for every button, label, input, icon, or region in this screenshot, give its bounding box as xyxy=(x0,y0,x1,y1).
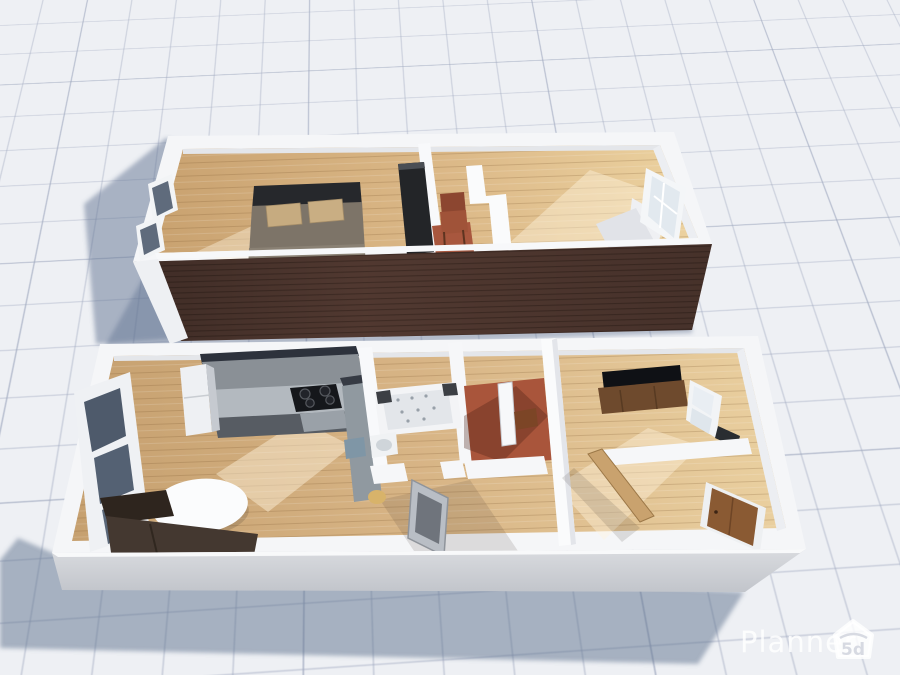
entry-hall[interactable] xyxy=(464,378,552,466)
3d-viewport[interactable]: Planner 5d xyxy=(0,0,900,675)
bath-bottom-wall-right[interactable] xyxy=(440,460,466,479)
bath-bottom-wall-left[interactable] xyxy=(370,463,408,484)
bath-sink[interactable] xyxy=(370,432,398,458)
cooktop[interactable] xyxy=(290,384,342,412)
bed-pillow-right xyxy=(308,199,344,223)
watermark-badge: 5d xyxy=(841,640,865,660)
bathtub[interactable] xyxy=(374,382,462,436)
bed-pillow-left xyxy=(266,203,302,227)
door-knob xyxy=(714,510,718,514)
fridge[interactable] xyxy=(180,364,220,436)
lower-apartment[interactable] xyxy=(52,336,806,592)
kitchen-sink[interactable] xyxy=(344,437,366,459)
tv-unit[interactable] xyxy=(598,365,688,414)
lower-front-wall[interactable] xyxy=(52,549,806,592)
watermark: Planner 5d xyxy=(740,621,872,660)
stool[interactable] xyxy=(368,490,386,504)
upper-apartment[interactable] xyxy=(133,132,712,344)
floorplan-render[interactable]: Planner 5d xyxy=(0,0,900,675)
upper-front-brick-wall[interactable] xyxy=(133,238,712,344)
sink-basin xyxy=(376,439,392,451)
tub-headrest-right xyxy=(442,383,458,396)
tub-headrest-left xyxy=(376,390,392,404)
